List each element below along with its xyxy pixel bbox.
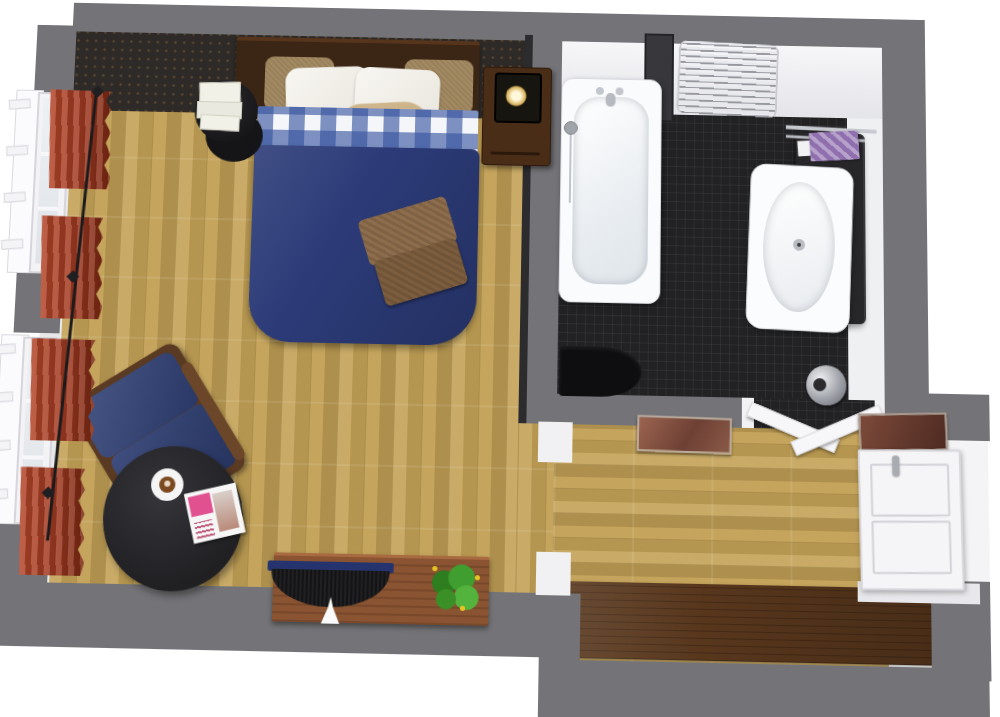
- table-lamp: [494, 72, 542, 123]
- bathtub-basin: [572, 96, 649, 285]
- artwork-1: [637, 415, 733, 455]
- pedal-bin-lid: [813, 378, 826, 391]
- magazine-photo: [212, 490, 240, 532]
- lamp-glow: [505, 85, 527, 107]
- artwork-2: [858, 412, 948, 452]
- towel-purple: [809, 130, 860, 161]
- window-1-shutter-fin: [6, 145, 28, 156]
- entry-door-panel-top: [870, 464, 950, 517]
- wall-left-segment-top: [34, 25, 77, 93]
- toilet: [559, 346, 642, 398]
- magazine-text-lines: [194, 519, 215, 539]
- shower-head: [564, 121, 578, 135]
- window-1-shutter-fin: [9, 99, 31, 110]
- window-2-shutter-fin: [0, 440, 11, 452]
- plant-leaf-4: [435, 589, 456, 610]
- entry-door-handle: [892, 456, 900, 476]
- tub-spout: [606, 93, 616, 107]
- tub-faucet-handle-left: [596, 87, 604, 95]
- curtain-panel-1: [49, 89, 112, 191]
- plant-flower-1: [432, 566, 437, 571]
- tub-faucet-handle-right: [616, 87, 624, 95]
- plant: [429, 562, 483, 615]
- plant-leaf-3: [454, 585, 479, 610]
- window-1-shutter-fin: [4, 192, 26, 203]
- passage-jamb-bottom: [536, 552, 571, 596]
- book-3: [200, 114, 240, 132]
- wall-right: [882, 19, 930, 440]
- nightstand-drawer-line: [490, 152, 539, 156]
- towel-radiator: [676, 40, 779, 118]
- window-2-shutter-fin: [0, 343, 16, 354]
- pedal-bin: [806, 365, 846, 406]
- window-2-shutter-fin: [0, 488, 8, 500]
- washbasin: [745, 163, 854, 334]
- window-2-mullion: [23, 455, 43, 459]
- plant-flower-3: [460, 606, 465, 611]
- floor-plan: · MOULIN DE COURAGE · FINEST: [0, 0, 1000, 717]
- window-1-shutter-fin: [1, 239, 23, 250]
- magazine-cover-image: [188, 493, 214, 518]
- plant-flower-2: [475, 575, 480, 580]
- books-stack: [196, 80, 245, 133]
- bathtub: [558, 78, 662, 304]
- coffee-foam: [164, 481, 170, 487]
- coffee-cup: [159, 476, 176, 493]
- entry-door: [858, 449, 965, 590]
- wall-bottom-hallway: [542, 659, 990, 717]
- drain-hole: [797, 243, 801, 247]
- window-2-shutter-fin: [0, 391, 13, 402]
- window-1-mullion: [38, 207, 58, 211]
- passage-jamb-top: [538, 422, 573, 463]
- entry-door-panel-bottom: [871, 521, 952, 575]
